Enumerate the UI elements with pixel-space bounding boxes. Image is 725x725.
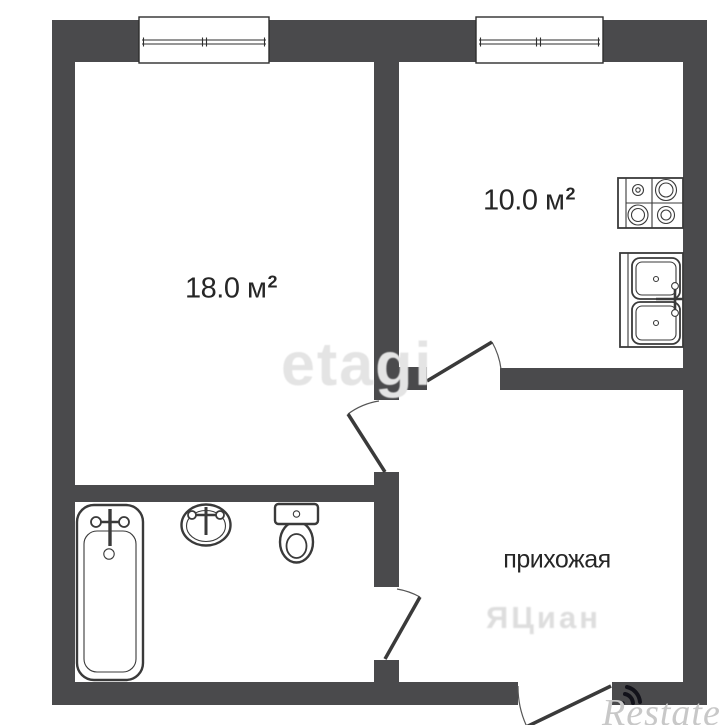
stove-icon xyxy=(618,178,683,228)
room-label-kitchen: 10.0 м2 xyxy=(483,185,575,218)
room-label-hallway: прихожая xyxy=(503,546,610,575)
window-icon-right xyxy=(476,17,603,63)
watermark-etagi: etagi xyxy=(281,329,433,399)
room-area-kitchen: 10.0 м xyxy=(483,185,564,217)
toilet-icon xyxy=(275,504,318,563)
wall-kitchen xyxy=(500,368,683,390)
wall-right xyxy=(683,20,707,705)
room-area-kitchen-sup: 2 xyxy=(565,184,575,204)
watermark-restate: Restate xyxy=(602,691,721,725)
bathtub-icon xyxy=(77,505,143,680)
door-kitchen xyxy=(427,342,501,381)
wall-bottom-left xyxy=(52,682,518,705)
room-area-living: 18.0 м xyxy=(185,273,266,305)
bath-sink-icon xyxy=(182,505,231,546)
door-living-room xyxy=(348,401,385,472)
wall-hall-upper xyxy=(374,472,399,587)
wall-hall-stub xyxy=(374,660,399,682)
door-bathroom xyxy=(385,589,420,659)
window-icon-left xyxy=(139,17,269,63)
watermark-cian: ЯЦиан xyxy=(486,600,601,636)
room-area-living-sup: 2 xyxy=(267,272,277,292)
wall-bathroom-top xyxy=(75,485,375,502)
kitchen-sink-icon xyxy=(620,253,683,347)
wall-left xyxy=(52,20,75,705)
floor-plan: 18.0 м2 10.0 м2 прихожая etagi ЯЦиан Res… xyxy=(0,0,725,725)
door-entrance xyxy=(518,686,611,725)
room-label-living: 18.0 м2 xyxy=(185,273,277,306)
